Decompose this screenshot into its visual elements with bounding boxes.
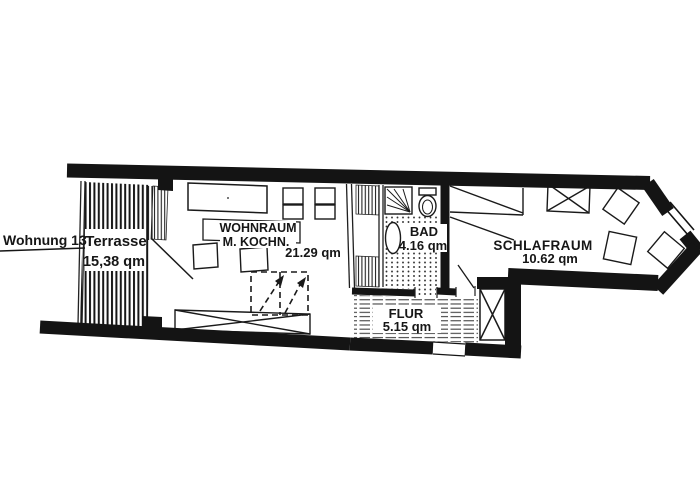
dining-chair-icon — [315, 188, 335, 204]
chair-icon — [603, 188, 639, 224]
floor-plan-drawing: Wohnung 13 Terrasse 15,38 qm WOHNRAUM M.… — [0, 0, 700, 500]
room-area-schlafraum: 10.62 qm — [522, 251, 578, 266]
bay-window-line — [670, 202, 694, 230]
bottom-wall — [465, 349, 521, 352]
duct-hatch — [356, 256, 379, 287]
shower-icon — [385, 187, 412, 214]
dining-chair-icon — [283, 205, 303, 219]
terrasse-door-swing — [152, 239, 193, 279]
room-name-bad: BAD — [410, 224, 438, 239]
arrowhead-icon — [297, 277, 306, 288]
room-area-wohnraum: 21.29 qm — [285, 245, 341, 260]
bottom-wall-step — [142, 316, 162, 328]
room-subtitle-wohnraum: M. KOCHN. — [223, 235, 290, 249]
sofa-button-dot — [227, 197, 229, 199]
top-wall — [67, 171, 650, 184]
room-name-terrasse: Terrasse — [85, 233, 146, 250]
room-area-terrasse: 15,38 qm — [83, 254, 145, 270]
terrasse-left-wall-line — [78, 181, 81, 325]
armchair-icon — [193, 243, 218, 269]
dining-chair-icon — [283, 188, 303, 204]
entrance-door-line — [433, 354, 465, 356]
schlafraum-door-swing — [458, 265, 474, 288]
closet-icon — [480, 289, 505, 340]
entrance-door-line — [433, 342, 465, 344]
bay-window-line — [664, 207, 688, 235]
floor-plan-page: Wohnung 13 Terrasse 15,38 qm WOHNRAUM M.… — [0, 0, 700, 500]
bed-icon — [450, 186, 523, 240]
room-area-bad: 4.16 qm — [399, 238, 447, 253]
apartment-title-underline — [0, 248, 85, 251]
wohnraum-right-wall-line — [347, 184, 350, 288]
flur-top-wall — [352, 291, 415, 293]
room-area-flur: 5.15 qm — [383, 319, 431, 334]
top-wall-step — [158, 178, 173, 191]
room-name-wohnraum: WOHNRAUM — [219, 221, 296, 235]
bottom-wall — [350, 344, 433, 348]
terrasse-threshold-hatch — [151, 186, 168, 240]
schlafraum-bottom-wall — [508, 276, 658, 283]
duct-hatch — [356, 185, 379, 215]
dining-chair-icon — [315, 205, 335, 219]
sofa-bed-icon — [251, 272, 308, 315]
chair-icon — [603, 231, 636, 264]
wohnraum-right-wall-line — [352, 184, 355, 288]
table-icon — [240, 247, 268, 272]
toilet-icon — [419, 188, 436, 217]
apartment-title: Wohnung 13 — [3, 232, 87, 248]
flur-top-wall — [437, 291, 456, 292]
